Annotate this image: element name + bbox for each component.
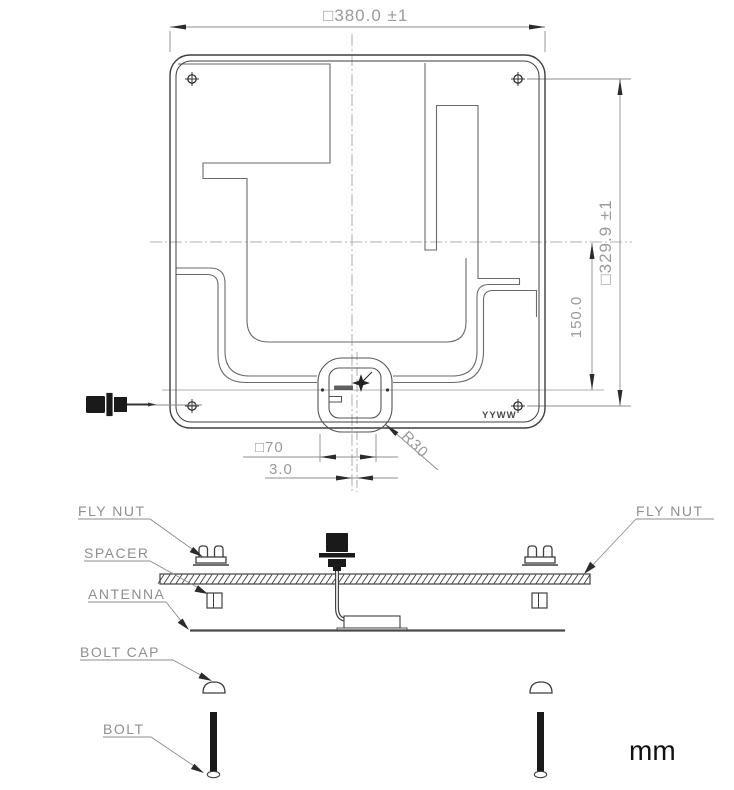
label-bolt-cap: BOLT CAP bbox=[80, 644, 160, 660]
units-label: mm bbox=[629, 735, 676, 766]
dim-offset-label: 3.0 bbox=[269, 461, 293, 478]
bolt-right bbox=[534, 712, 546, 778]
bolt-cap-right bbox=[530, 682, 552, 693]
dim-connector-square-label: □70 bbox=[255, 439, 284, 456]
corner-screw-icon bbox=[185, 399, 199, 413]
top-view: □380.0 ±1 □329.9 ±1 150.0 □70 3.0 R30 YY… bbox=[86, 6, 632, 492]
corner-screw-icon bbox=[185, 72, 199, 86]
fly-nut-right bbox=[522, 546, 558, 565]
spacer-left bbox=[207, 593, 222, 608]
logo-star-icon bbox=[352, 372, 372, 392]
radius-callout-label: R30 bbox=[398, 428, 432, 462]
centerlines bbox=[150, 34, 632, 492]
dim-width-label: □380.0 ±1 bbox=[323, 6, 408, 25]
spacer-right bbox=[532, 593, 547, 608]
bolt-left bbox=[207, 712, 219, 778]
mounting-bar bbox=[158, 574, 590, 584]
antenna-trace-pattern bbox=[176, 63, 537, 383]
label-fly-nut-left: FLY NUT bbox=[78, 503, 146, 519]
coax-connector bbox=[86, 393, 202, 417]
rf-connector-region bbox=[318, 358, 392, 432]
date-code-text: YYWW bbox=[482, 410, 517, 421]
dim-height-label: □329.9 ±1 bbox=[596, 199, 615, 284]
dim-feed-height-label: 150.0 bbox=[568, 296, 585, 339]
dimension-lines bbox=[170, 25, 631, 481]
logo-text-mark bbox=[334, 386, 353, 391]
label-antenna: ANTENNA bbox=[88, 586, 165, 602]
antenna-plate-outline bbox=[170, 55, 545, 428]
label-fly-nut-right: FLY NUT bbox=[636, 503, 704, 519]
label-bolt: BOLT bbox=[103, 721, 145, 737]
drawing-canvas: □380.0 ±1 □329.9 ±1 150.0 □70 3.0 R30 YY… bbox=[0, 0, 734, 790]
corner-screw-icon bbox=[511, 72, 525, 86]
leader-lines bbox=[78, 519, 714, 773]
label-spacer: SPACER bbox=[84, 545, 150, 561]
bolt-cap-left bbox=[203, 682, 225, 693]
exploded-view: FLY NUT FLY NUT SPACER ANTENNA BOLT CAP … bbox=[78, 503, 714, 778]
mechanical-drawing-sheet: □380.0 ±1 □329.9 ±1 150.0 □70 3.0 R30 YY… bbox=[0, 0, 734, 790]
fly-nut-left bbox=[193, 546, 229, 565]
